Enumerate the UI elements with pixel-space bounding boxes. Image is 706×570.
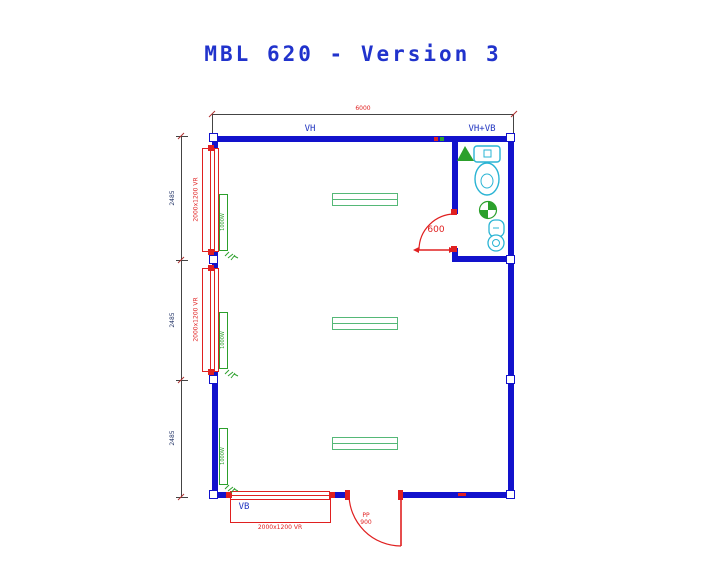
window3-dim-line — [230, 522, 330, 523]
entrance-door-jamb-left — [345, 490, 350, 500]
zone-label-main-hall: VH — [295, 124, 325, 134]
sink-icon — [488, 220, 504, 251]
wall-right — [508, 136, 514, 498]
section-height-2: 2485 — [169, 300, 177, 340]
left-dim-tick-4 — [176, 497, 188, 498]
plan-symbol-overlay — [0, 0, 706, 570]
entrance-door-label: PP 900 — [352, 512, 380, 526]
joint-connector-left-2 — [209, 375, 218, 384]
top-wall-red-tick — [434, 137, 438, 141]
floor-drain-icon — [480, 202, 497, 219]
joint-connector-left-1 — [209, 255, 218, 264]
window2-jamb-bottom — [208, 369, 214, 375]
window-bottom — [230, 491, 330, 500]
entrance-door-type: PP — [352, 512, 380, 519]
thermostat-symbol-2 — [225, 370, 238, 378]
zone-label-wet-room: VH+VB — [458, 124, 506, 134]
light-mid-line — [333, 443, 397, 444]
wall-top — [212, 136, 514, 142]
corner-connector-bottom-right — [506, 490, 515, 499]
joint-connector-right-2 — [506, 375, 515, 384]
window1-jamb-top — [208, 145, 214, 151]
bottom-wall-red-tick — [458, 493, 466, 496]
joint-connector-right-1 — [506, 255, 515, 264]
left-dim-tick-1 — [176, 136, 188, 137]
window2-jamb-top — [208, 265, 214, 271]
light-mid-line — [333, 323, 397, 324]
ceiling-light-2 — [332, 317, 398, 330]
top-wall-green-tick — [440, 137, 444, 141]
vent-triangle-icon — [457, 146, 474, 161]
drawing-title: MBL 620 - Version 3 — [0, 42, 706, 66]
window3-dim-ext-right — [330, 498, 331, 523]
wetroom-door-jamb-top — [451, 209, 457, 215]
corner-connector-bottom-left — [209, 490, 218, 499]
light-mid-line — [333, 199, 397, 200]
thermostat-symbol-1 — [225, 252, 238, 260]
left-dim-tick-3 — [176, 380, 188, 381]
window3-dim-label: 2000x1200 VR — [240, 524, 320, 531]
window3-jamb-left — [226, 492, 232, 498]
wetroom-door-width: 600 — [421, 227, 451, 234]
radiator-middle-label: 1000W — [220, 320, 226, 360]
window-left-top — [210, 148, 219, 252]
wall-bottom-right-segment — [400, 492, 514, 498]
window1-jamb-bottom — [208, 249, 214, 255]
radiator-bottom-label: 1000W — [220, 436, 226, 476]
entrance-door-jamb-right — [398, 490, 403, 500]
corner-connector-top-right — [506, 133, 515, 142]
toilet-icon — [474, 146, 500, 195]
corner-connector-top-left — [209, 133, 218, 142]
window1-dim-line — [202, 148, 203, 252]
top-dimension-line — [212, 114, 514, 115]
ceiling-light-1 — [332, 193, 398, 206]
window2-dim-label: 2000x1200 VR — [193, 290, 200, 350]
radiator-top-label: 1000W — [220, 202, 226, 242]
zone-label-bottom: VB — [232, 502, 256, 512]
section-height-3: 2485 — [169, 418, 177, 458]
window-glass-line — [214, 269, 215, 371]
wetroom-door-jamb-bottom — [451, 246, 457, 252]
window2-dim-line — [202, 268, 203, 372]
left-dimension-line — [181, 136, 182, 498]
floor-plan-canvas: MBL 620 - Version 3 6000 2485 2485 2485 … — [0, 0, 706, 570]
section-height-1: 2485 — [169, 178, 177, 218]
wall-wetroom-horizontal — [452, 256, 514, 262]
wall-wetroom-vertical-upper — [452, 142, 458, 214]
window-glass-line — [231, 495, 329, 496]
window-left-middle — [210, 268, 219, 372]
left-dim-tick-2 — [176, 260, 188, 261]
ceiling-light-3 — [332, 437, 398, 450]
overall-width-label: 6000 — [343, 105, 383, 112]
window3-dim-ext-left — [230, 498, 231, 523]
entrance-door-width: 900 — [352, 519, 380, 526]
window-glass-line — [214, 149, 215, 251]
window1-dim-label: 2000x1200 VR — [193, 170, 200, 230]
